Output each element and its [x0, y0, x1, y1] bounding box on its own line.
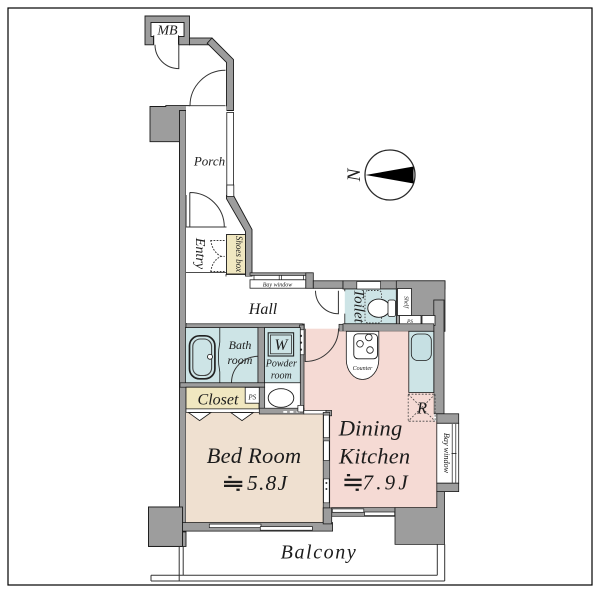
svg-text:Closet: Closet: [198, 392, 239, 409]
svg-text:Dining: Dining: [338, 416, 403, 441]
svg-text:Shoes box: Shoes box: [234, 236, 244, 272]
svg-text:Balcony: Balcony: [281, 542, 358, 564]
svg-text:7.9J: 7.9J: [363, 471, 411, 495]
svg-text:Bay window: Bay window: [263, 282, 293, 288]
svg-text:room: room: [228, 353, 253, 367]
svg-text:MB: MB: [156, 24, 178, 39]
svg-text:Bed Room: Bed Room: [207, 443, 302, 468]
svg-text:Bay window: Bay window: [442, 433, 451, 474]
svg-text:Counter: Counter: [353, 366, 373, 372]
svg-text:5.8J: 5.8J: [247, 471, 288, 495]
svg-text:Hall: Hall: [248, 301, 278, 318]
svg-text:room: room: [271, 371, 292, 382]
svg-text:Bath: Bath: [229, 338, 252, 352]
svg-text:N: N: [344, 167, 365, 182]
svg-text:Kitchen: Kitchen: [338, 444, 410, 469]
svg-text:PS: PS: [247, 394, 256, 402]
svg-text:Porch: Porch: [193, 154, 225, 169]
svg-text:Shelf: Shelf: [403, 296, 410, 309]
svg-text:W: W: [274, 337, 289, 354]
svg-text:Entry: Entry: [192, 237, 207, 270]
svg-text:Toilet: Toilet: [350, 289, 366, 323]
svg-text:Powder: Powder: [265, 359, 297, 370]
svg-text:R: R: [416, 398, 427, 417]
